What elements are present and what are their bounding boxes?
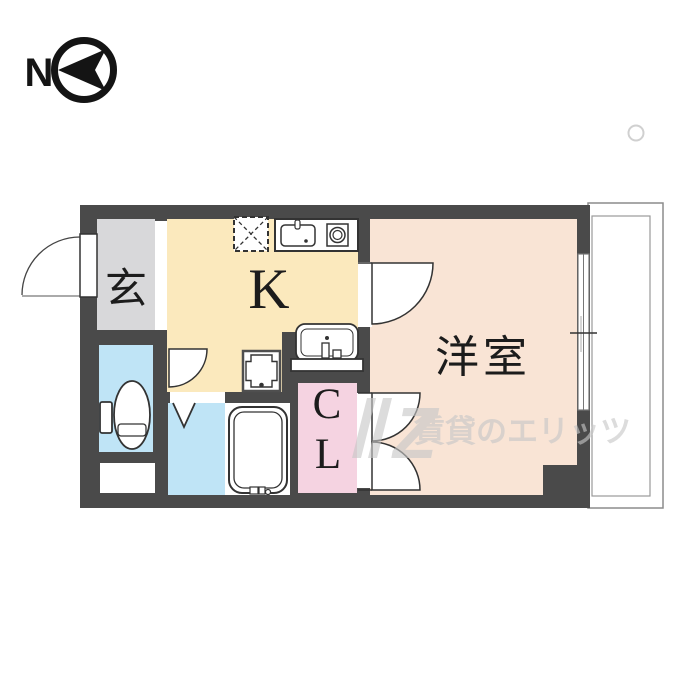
kitchen-western-door-opening [358,262,372,327]
floorplan-drawing: N [0,0,700,700]
compass: N [25,41,114,100]
entrance-door-icon [22,234,97,297]
entrance-label: 玄 [105,267,147,313]
bath-threshold [170,392,225,403]
western-room-label: 洋室 [435,333,531,382]
bathtub-icon [229,407,287,495]
kitchen-counter [275,219,358,251]
washing-machine-pan-icon [243,351,280,391]
balcony-inner [592,216,650,496]
closet-label-line2: L [315,431,341,478]
closet-label-line1: C [313,381,342,428]
washbasin-icon [291,324,363,371]
pipe-space [100,463,155,493]
watermark-brand-text: 賃貸のエリッツ [413,414,631,449]
bath-room [168,403,225,495]
compass-north-label: N [25,51,54,95]
stove-icon [327,224,348,246]
entrance-step-strip [155,221,167,330]
refrigerator-space-icon [234,217,268,251]
floorplan-page: N [0,0,700,700]
watermark-circle-icon [629,126,644,141]
kitchen-label: K [248,258,289,321]
